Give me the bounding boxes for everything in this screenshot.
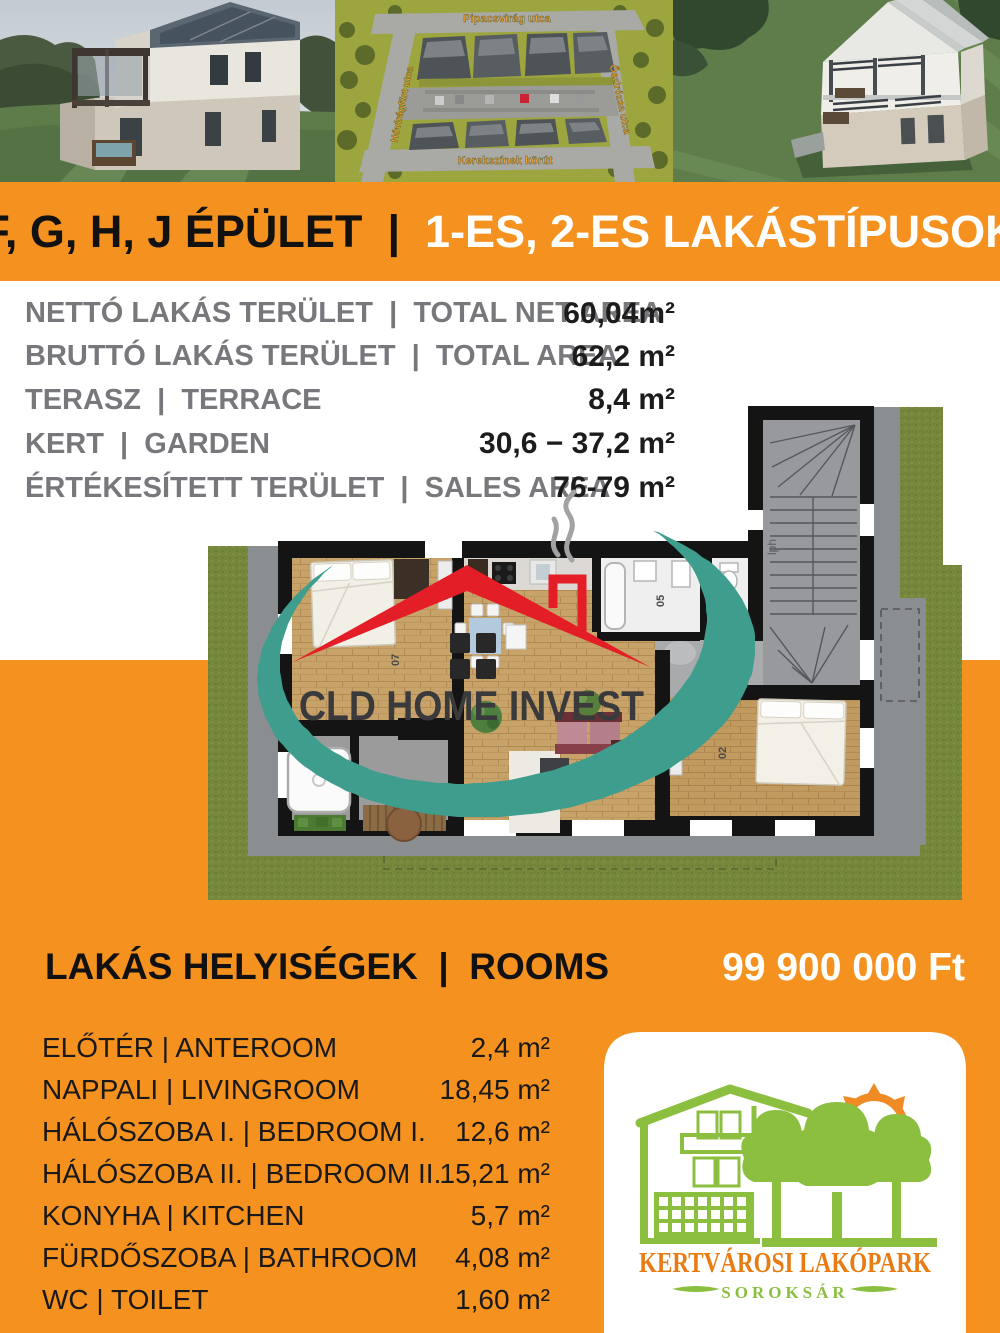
svg-text:02: 02 (717, 747, 729, 759)
svg-text:CLD HOME INVEST: CLD HOME INVEST (299, 682, 644, 729)
svg-text:SOROKSÁR: SOROKSÁR (721, 1283, 848, 1302)
svg-text:Pipacsvirág utca: Pipacsvirág utca (463, 13, 551, 25)
svg-text:05: 05 (655, 595, 667, 607)
svg-text:lph: lph (765, 539, 779, 555)
svg-text:07: 07 (390, 654, 402, 666)
svg-text:KERTVÁROSI LAKÓPARK: KERTVÁROSI LAKÓPARK (639, 1248, 931, 1279)
svg-text:Kerekszínek körút: Kerekszínek körút (458, 155, 553, 167)
